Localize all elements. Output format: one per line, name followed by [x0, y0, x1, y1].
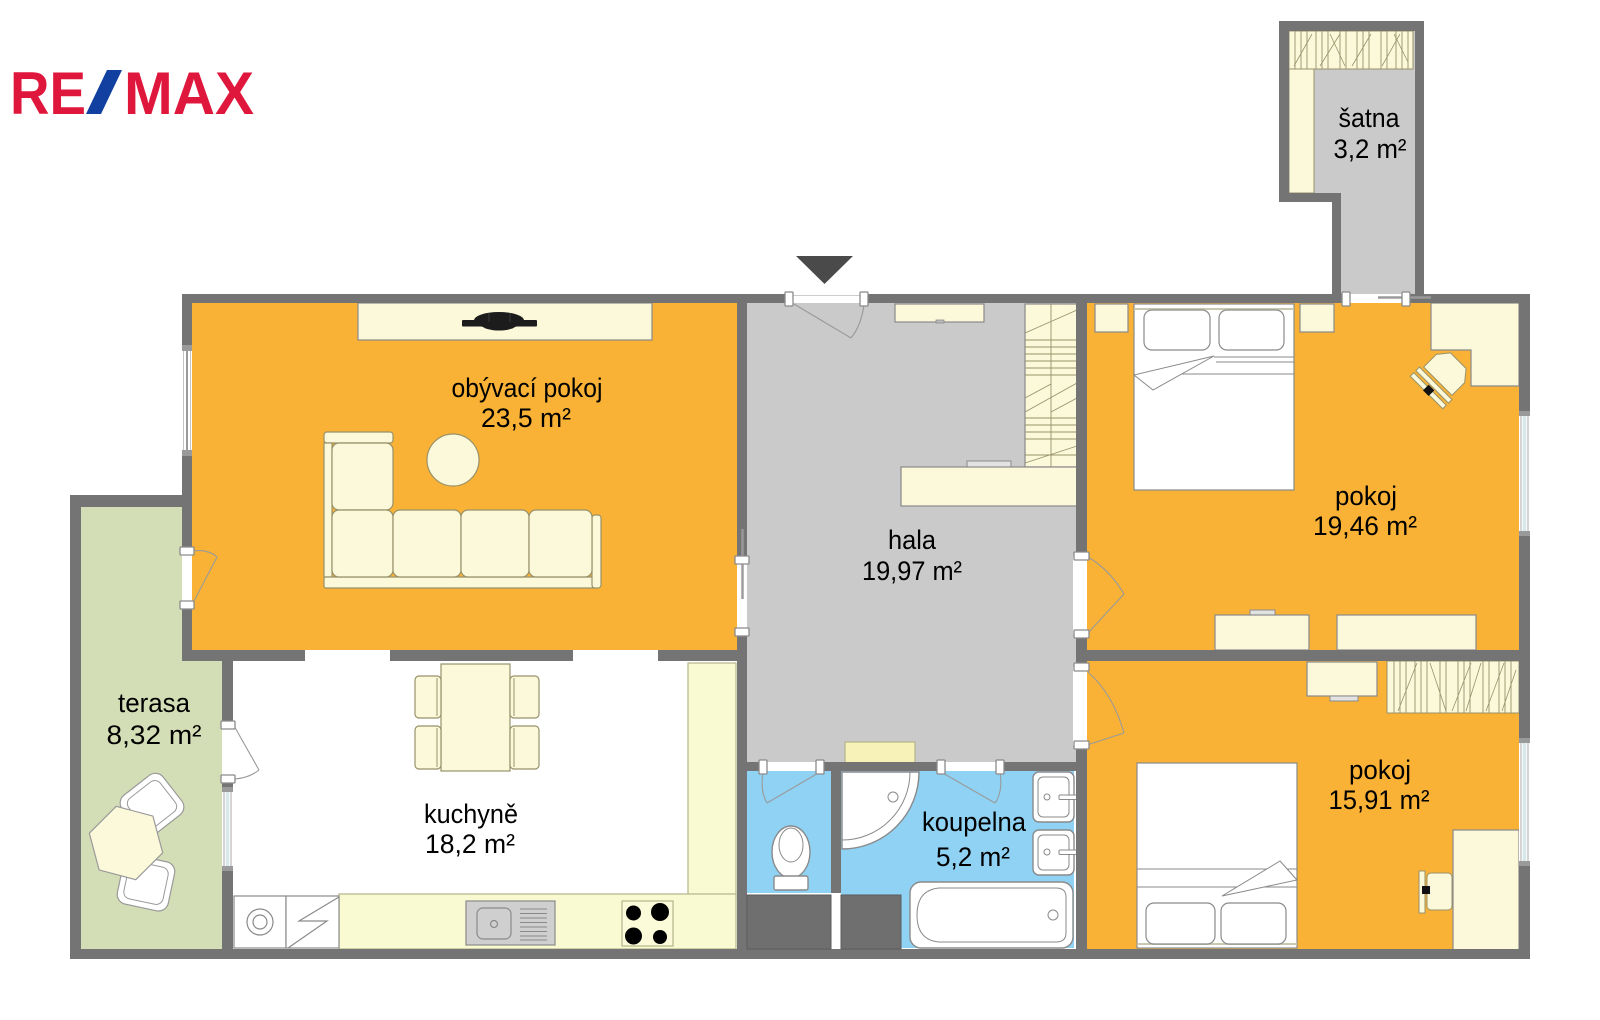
svg-text:terasa: terasa [118, 688, 191, 718]
svg-text:pokoj: pokoj [1349, 755, 1411, 785]
svg-text:18,2 m²: 18,2 m² [425, 829, 515, 859]
svg-text:kuchyně: kuchyně [424, 799, 518, 829]
svg-text:19,97 m²: 19,97 m² [862, 556, 962, 586]
svg-text:MAX: MAX [124, 60, 254, 127]
svg-text:3,2 m²: 3,2 m² [1334, 134, 1407, 164]
svg-text:RE: RE [10, 60, 86, 127]
svg-text:obývací pokoj: obývací pokoj [452, 373, 603, 403]
svg-text:23,5 m²: 23,5 m² [481, 403, 571, 433]
svg-text:15,91 m²: 15,91 m² [1329, 785, 1430, 815]
svg-text:šatna: šatna [1339, 103, 1401, 133]
svg-text:19,46 m²: 19,46 m² [1313, 511, 1417, 541]
svg-text:hala: hala [888, 525, 937, 555]
svg-text:pokoj: pokoj [1335, 481, 1397, 511]
svg-text:koupelna: koupelna [922, 807, 1027, 837]
svg-text:5,2 m²: 5,2 m² [936, 842, 1010, 872]
svg-text:8,32 m²: 8,32 m² [107, 720, 202, 750]
